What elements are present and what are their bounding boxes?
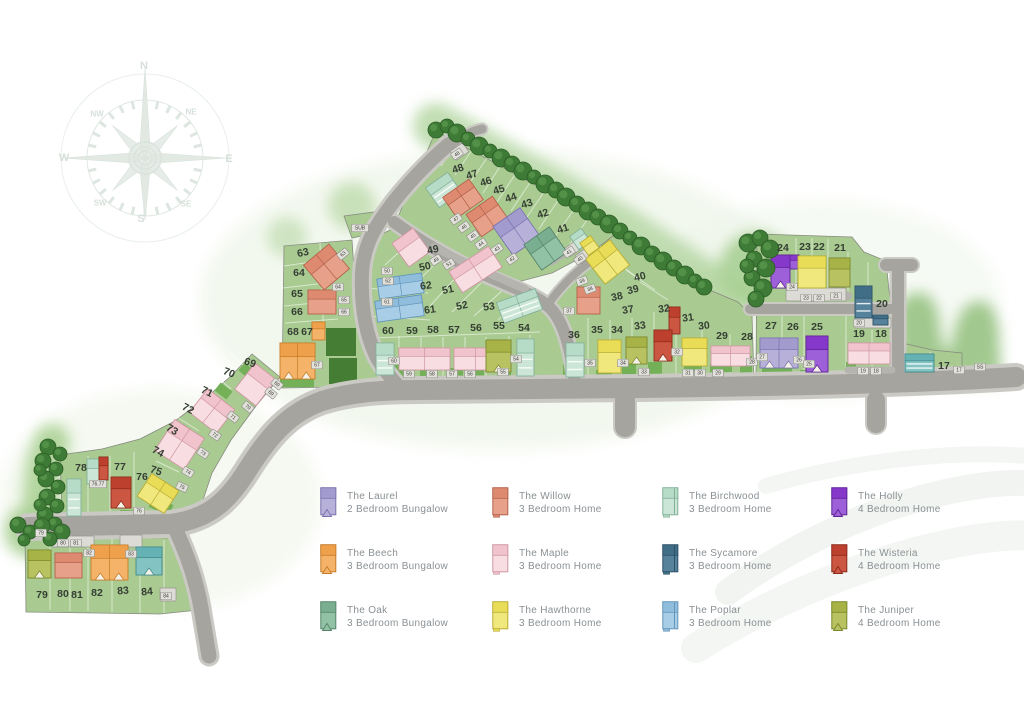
- house-wisteria: [654, 330, 672, 361]
- plot-tag: 59: [404, 370, 415, 378]
- svg-text:22: 22: [816, 296, 822, 302]
- plot-tag: 19: [858, 367, 869, 375]
- plot-number-78: 78: [75, 462, 87, 474]
- svg-text:28: 28: [749, 360, 755, 366]
- house-hawthorne: [598, 340, 621, 373]
- svg-text:17: 17: [956, 368, 962, 374]
- plot-tag: 81: [71, 539, 82, 547]
- plot-tag: 37: [564, 307, 575, 315]
- svg-text:58: 58: [429, 372, 435, 378]
- plot-tag: SS: [975, 363, 986, 371]
- house-juniper: [626, 337, 647, 364]
- house-beech: [91, 545, 128, 580]
- plot-number-55: 55: [493, 320, 505, 332]
- plot-tag: 29: [713, 369, 724, 377]
- plot-tag: 18: [871, 367, 882, 375]
- house-beech: [280, 343, 315, 379]
- plot-number-23: 23: [799, 241, 811, 253]
- svg-text:57: 57: [449, 372, 455, 378]
- hedge: [326, 328, 356, 356]
- svg-text:25: 25: [806, 362, 812, 368]
- plot-tag: 66: [339, 308, 350, 316]
- plot-tag: 17: [954, 366, 965, 374]
- plot-tag: SUB: [352, 224, 369, 232]
- plot-tag: 25: [804, 360, 815, 368]
- plot-number-27: 27: [765, 320, 777, 332]
- plot-tag: 61: [382, 298, 393, 306]
- house-juniper: [829, 258, 850, 287]
- plot-number-26: 26: [787, 321, 799, 333]
- svg-text:55: 55: [500, 370, 506, 376]
- plot-tag: 56: [465, 370, 476, 378]
- plot-number-68: 68: [287, 326, 299, 338]
- plot-number-17: 17: [938, 360, 950, 372]
- plot-number-33: 33: [633, 319, 646, 333]
- svg-text:20: 20: [856, 321, 862, 327]
- house-maple: [399, 348, 450, 370]
- plot-tag: 67: [312, 361, 323, 369]
- plot-number-61: 61: [423, 303, 436, 317]
- plot-number-57: 57: [448, 324, 460, 336]
- svg-text:81: 81: [73, 541, 79, 547]
- plot-number-77: 77: [114, 461, 126, 473]
- house-wisteria: [99, 457, 108, 480]
- compass-label: N: [140, 60, 148, 72]
- svg-text:26: 26: [796, 358, 802, 364]
- svg-text:21: 21: [833, 294, 839, 300]
- plot-tag: 33: [639, 368, 650, 376]
- plot-number-37: 37: [621, 303, 635, 317]
- compass-rose: NNEESESSWWNW: [59, 60, 233, 242]
- house-beech: [312, 322, 325, 340]
- plot-tag: 34: [618, 359, 629, 367]
- plot-tag: 65: [339, 296, 350, 304]
- plot-number-82: 82: [91, 587, 103, 599]
- svg-text:60: 60: [391, 359, 397, 365]
- plot-tag: 76.77: [90, 480, 107, 488]
- svg-text:18: 18: [873, 369, 879, 375]
- house-juniper: [28, 550, 51, 578]
- plot-number-36: 36: [568, 329, 580, 341]
- plot-tag: 24: [787, 283, 798, 291]
- plot-number-58: 58: [427, 324, 439, 336]
- svg-text:80: 80: [60, 541, 66, 547]
- svg-text:76: 76: [136, 509, 142, 515]
- plot-tag: 22: [814, 294, 825, 302]
- compass-label: NW: [90, 110, 104, 119]
- compass-label: SW: [94, 199, 107, 208]
- house-maple: [711, 346, 750, 366]
- plot-tag: 30: [695, 369, 706, 377]
- svg-text:19: 19: [860, 369, 866, 375]
- plot-number-35: 35: [591, 324, 603, 336]
- plot-tag: 35: [585, 359, 596, 367]
- compass-label: E: [225, 153, 232, 165]
- plot-tag: 55: [498, 368, 509, 376]
- svg-text:67: 67: [314, 363, 320, 369]
- plot-number-65: 65: [291, 288, 303, 300]
- plot-number-21: 21: [834, 242, 846, 254]
- plot-tag: 64: [333, 283, 344, 291]
- svg-text:84: 84: [163, 594, 169, 600]
- svg-text:34: 34: [620, 361, 626, 367]
- plot-number-24: 24: [777, 242, 789, 254]
- house-teal: [136, 547, 162, 575]
- plot-tag: 57: [447, 370, 458, 378]
- house-teal: [905, 354, 934, 372]
- svg-text:59: 59: [406, 372, 412, 378]
- plot-number-54: 54: [518, 322, 530, 334]
- plot-tag: 80: [58, 539, 69, 547]
- compass-label: S: [137, 213, 144, 225]
- house-birchwood: [566, 343, 584, 377]
- svg-text:SUB: SUB: [355, 226, 366, 232]
- plot-number-53: 53: [482, 300, 495, 314]
- plot-number-79: 79: [36, 589, 48, 601]
- plot-tag: 84: [161, 592, 172, 600]
- plot-tag: 32: [672, 348, 683, 356]
- svg-text:64: 64: [335, 285, 341, 291]
- svg-text:31: 31: [685, 371, 691, 377]
- compass-label: NE: [185, 108, 197, 117]
- plot-tag: 54: [511, 355, 522, 363]
- svg-text:79: 79: [38, 531, 44, 537]
- plot-tag: 21: [831, 292, 842, 300]
- svg-text:37: 37: [566, 309, 572, 315]
- plot-number-84: 84: [141, 586, 154, 599]
- plot-tag: 28: [747, 358, 758, 366]
- plot-tag: 50: [382, 267, 393, 275]
- house-willow: [55, 553, 82, 578]
- svg-text:54: 54: [513, 357, 519, 363]
- plot-number-62: 62: [419, 279, 432, 293]
- svg-text:SS: SS: [977, 365, 984, 371]
- plot-tag: 79: [36, 529, 47, 537]
- svg-text:33: 33: [641, 370, 647, 376]
- plot-number-80: 80: [57, 588, 69, 600]
- house-birchwood: [67, 479, 81, 516]
- watermark-swoosh: [696, 454, 1024, 648]
- house-juniper: [486, 340, 511, 372]
- svg-text:24: 24: [789, 285, 795, 291]
- plot-number-25: 25: [811, 321, 823, 333]
- plot-tag: 20: [854, 319, 865, 327]
- compass-label: SE: [181, 200, 192, 209]
- house-hawthorne: [798, 256, 826, 288]
- plot-number-64: 64: [293, 267, 305, 279]
- plot-tag: 23: [801, 294, 812, 302]
- site-plan: NNEESESSWWNW4847464544434241405062614951…: [0, 0, 1024, 723]
- plot-number-18: 18: [875, 328, 887, 340]
- plot-number-60: 60: [382, 325, 394, 337]
- svg-text:32: 32: [674, 350, 680, 356]
- svg-text:83: 83: [128, 552, 134, 558]
- plot-number-29: 29: [716, 330, 728, 342]
- plot-number-81: 81: [71, 589, 83, 601]
- plot-tag: 76: [134, 507, 145, 515]
- house-sycamore: [855, 286, 872, 318]
- svg-text:35: 35: [587, 361, 593, 367]
- house-sycamore: [873, 315, 888, 325]
- plot-tag: 62: [383, 277, 394, 285]
- plot-tag: 58: [427, 370, 438, 378]
- plot-tag: 83: [126, 550, 137, 558]
- plot-tag: 60: [389, 357, 400, 365]
- svg-text:66: 66: [341, 310, 347, 316]
- svg-text:50: 50: [384, 269, 390, 275]
- svg-text:30: 30: [697, 371, 703, 377]
- plot-tag: 31: [683, 369, 694, 377]
- plot-number-66: 66: [291, 306, 303, 318]
- plot-number-67: 67: [301, 326, 313, 338]
- house-wisteria: [111, 477, 131, 508]
- plot-number-31: 31: [681, 311, 694, 325]
- plot-number-19: 19: [853, 328, 865, 340]
- plot-number-30: 30: [698, 319, 711, 332]
- plot-number-76: 76: [136, 471, 148, 483]
- svg-text:56: 56: [467, 372, 473, 378]
- plot-tag: 26: [794, 356, 805, 364]
- lawn: [648, 362, 662, 374]
- plot-number-83: 83: [117, 585, 130, 598]
- svg-text:62: 62: [385, 279, 391, 285]
- svg-text:29: 29: [715, 371, 721, 377]
- svg-text:61: 61: [384, 300, 390, 306]
- svg-text:27: 27: [759, 355, 765, 361]
- svg-text:65: 65: [341, 298, 347, 304]
- plot-number-20: 20: [876, 298, 888, 310]
- plot-number-32: 32: [657, 302, 670, 316]
- plot-number-34: 34: [611, 324, 623, 336]
- svg-text:82: 82: [86, 551, 92, 557]
- plot-tag: 27: [757, 353, 768, 361]
- plot-tag: 82: [84, 549, 95, 557]
- plot-number-59: 59: [406, 325, 418, 337]
- compass-label: W: [59, 152, 70, 164]
- plot-number-28: 28: [741, 331, 753, 343]
- site-map: NNEESESSWWNW4847464544434241405062614951…: [0, 0, 1024, 723]
- house-willow: [308, 290, 336, 314]
- plot-number-22: 22: [813, 241, 825, 253]
- house-hawthorne: [682, 338, 707, 366]
- svg-text:76.77: 76.77: [92, 482, 105, 488]
- plot-number-56: 56: [470, 322, 482, 334]
- house-maple: [848, 343, 890, 364]
- svg-text:23: 23: [803, 296, 809, 302]
